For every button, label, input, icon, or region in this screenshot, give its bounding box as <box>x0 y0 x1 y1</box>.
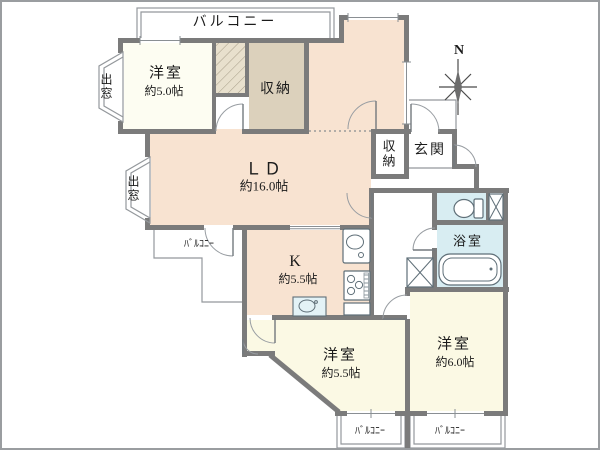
label-kitchen-name: K <box>289 254 301 270</box>
washing-machine-icon <box>407 258 433 287</box>
label-living-dining-size: 約16.0帖 <box>240 180 289 193</box>
label-bedroom-nw-name: 洋室 <box>149 67 183 82</box>
stove-icon <box>344 271 370 300</box>
label-balcony-south-right: ﾊﾞﾙｺﾆｰ <box>435 427 465 437</box>
bathtub-icon <box>439 254 501 285</box>
washbasin-icon <box>293 297 326 316</box>
label-bay-window-north: 出窓 <box>100 73 112 101</box>
label-bedroom-nw-size: 約5.0帖 <box>144 85 183 97</box>
label-balcony-south-left: ﾊﾞﾙｺﾆｰ <box>355 427 385 437</box>
room-living-dining-upper-west <box>309 43 344 129</box>
label-entrance: 玄関 <box>414 144 446 158</box>
label-kitchen-size: 約5.5帖 <box>278 273 317 285</box>
label-living-dining-name: ＬＤ <box>245 161 283 178</box>
floor-plan-graphics <box>2 2 600 450</box>
closet-hatched <box>216 43 245 94</box>
toilet-icon <box>454 199 483 218</box>
label-storage-hall: 収納 <box>382 139 395 169</box>
label-compass-north: N <box>454 44 464 58</box>
label-bay-window-west: 出窓 <box>127 175 139 203</box>
compass-icon <box>439 59 477 115</box>
label-bathroom: 浴室 <box>453 235 483 248</box>
label-balcony-top: バルコニー <box>193 16 278 30</box>
kitchen-sink-icon <box>343 229 370 263</box>
kitchen-cabinet-icon <box>344 303 370 315</box>
pipe-space-icon <box>489 194 503 220</box>
label-balcony-ld: ﾊﾞﾙｺﾆｰ <box>184 240 214 250</box>
label-bedroom-south-name: 洋室 <box>323 349 357 364</box>
label-bedroom-southeast-name: 洋室 <box>437 338 471 353</box>
label-storage-north: 収納 <box>260 83 292 97</box>
floor-plan: バルコニー 出窓 洋室 約5.0帖 収納 ＬＤ 約16.0帖 出窓 収納 玄関 … <box>0 0 600 450</box>
label-bedroom-southeast-size: 約6.0帖 <box>435 356 474 368</box>
label-bedroom-south-size: 約5.5帖 <box>321 367 360 379</box>
